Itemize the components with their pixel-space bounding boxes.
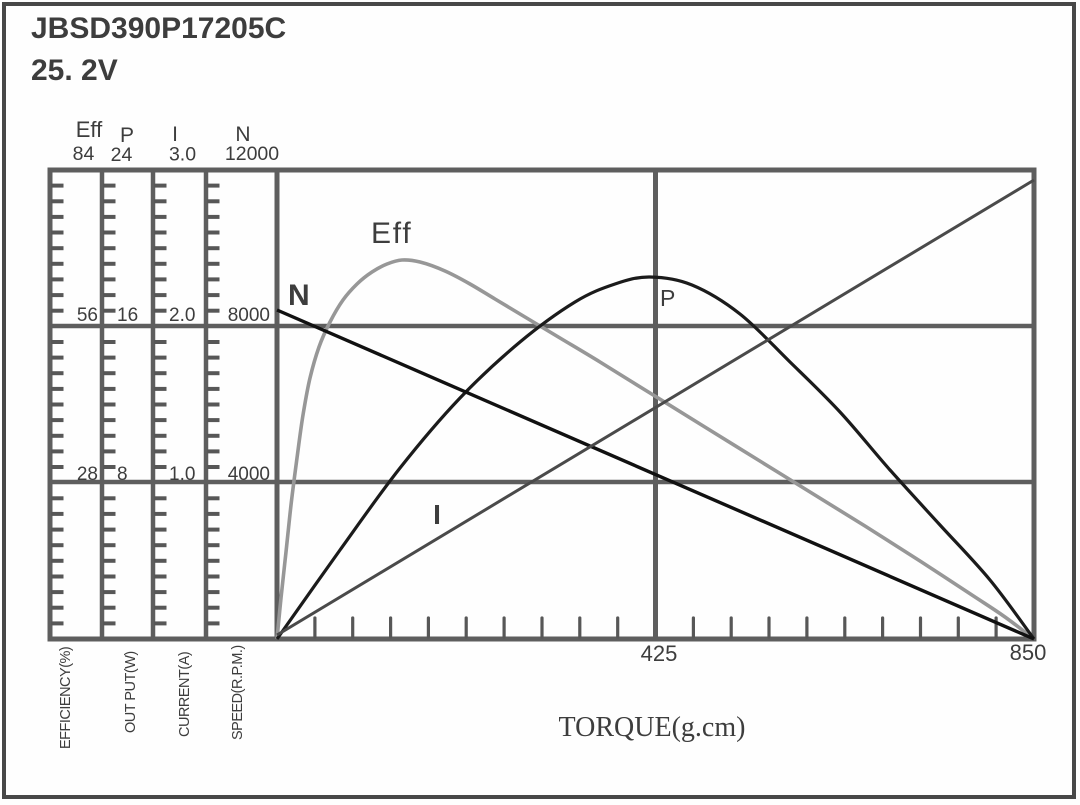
svg-text:EFFICIENCY(%): EFFICIENCY(%) [58,647,74,749]
svg-text:8000: 8000 [228,305,270,326]
svg-text:JBSD390P17205C: JBSD390P17205C [31,12,286,45]
svg-text:24: 24 [111,144,133,166]
svg-text:425: 425 [641,641,678,666]
svg-text:56: 56 [77,305,98,326]
svg-text:I: I [433,499,441,530]
svg-text:850: 850 [1010,640,1047,665]
svg-text:CURRENT(A): CURRENT(A) [177,652,193,737]
svg-text:OUT PUT(W): OUT PUT(W) [123,651,139,733]
svg-text:12000: 12000 [225,143,279,165]
svg-text:Eff: Eff [76,117,103,142]
svg-text:16: 16 [117,305,138,326]
svg-text:1.0: 1.0 [169,464,195,485]
svg-text:TORQUE(g.cm): TORQUE(g.cm) [559,712,746,743]
svg-text:2.0: 2.0 [169,305,195,326]
svg-text:Eff: Eff [371,217,413,250]
svg-text:SPEED(R.P.M.): SPEED(R.P.M.) [230,645,246,740]
svg-text:3.0: 3.0 [169,144,196,166]
svg-text:N: N [288,279,310,312]
svg-text:P: P [660,285,675,311]
svg-text:84: 84 [73,143,95,165]
svg-text:25. 2V: 25. 2V [31,54,118,87]
svg-text:8: 8 [117,464,128,485]
svg-text:28: 28 [77,464,98,485]
svg-text:4000: 4000 [228,464,270,485]
